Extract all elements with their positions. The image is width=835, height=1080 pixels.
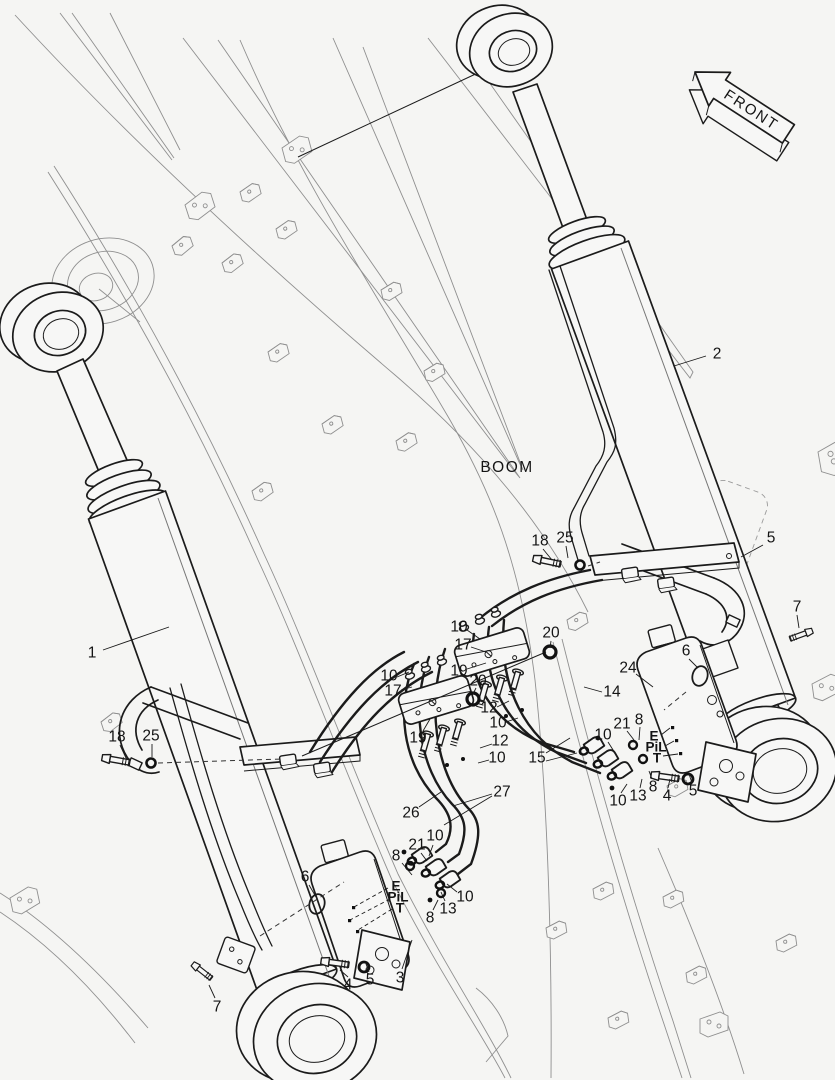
callout-4: 4 [344,977,353,994]
callout-6: 6 [682,643,691,660]
callout-5: 5 [689,783,698,800]
callout-8: 8 [649,779,658,796]
leader-line-7 [209,985,215,998]
callout-2: 2 [713,346,722,363]
front-direction-arrow: FRONT [674,56,804,168]
callout-T: T [396,901,405,916]
callout-27: 27 [493,784,510,801]
pipe-clamp-bolt-right [789,627,814,642]
leader-line-25 [566,546,568,558]
left-boom-cylinder [0,271,389,1080]
callout-21: 21 [408,837,425,854]
callout-4: 4 [663,788,672,805]
leader-line-8 [433,900,438,910]
callout-13: 13 [629,788,646,805]
callout-12: 12 [491,733,508,750]
callout-5: 5 [366,972,375,989]
eye-reference-line [298,64,497,157]
callout-3: 3 [396,970,405,987]
callout-20: 20 [542,625,560,642]
callout-10: 10 [450,619,468,636]
callout-8: 8 [392,848,401,865]
leader-line-10 [478,760,489,763]
callout-1: 1 [88,645,97,662]
callout-6: 6 [301,869,310,886]
parts-diagram-boom-cylinder-piping: FRONT BOOM 121825764538211010138EPiLT101… [0,0,835,1080]
callout-18: 18 [531,533,548,550]
callout-10: 10 [456,889,474,906]
callout-10: 10 [426,828,444,845]
leader-line-14 [584,687,602,692]
pipe-clamp-bolt-left [190,961,213,982]
callout-10: 10 [594,727,612,744]
callout-19: 19 [409,730,426,747]
callout-10: 10 [488,750,506,767]
leader-line-2 [674,356,706,366]
boom-label: BOOM [480,459,533,476]
leader-line-18 [120,745,126,758]
callout-10: 10 [489,715,507,732]
leader-line-8 [639,727,640,740]
callout-21: 21 [613,716,630,733]
callout-5: 5 [767,530,776,547]
callout-14: 14 [603,684,621,701]
callout-24: 24 [619,660,637,677]
callout-10: 10 [609,793,627,810]
callout-25: 25 [142,728,159,745]
callout-15: 15 [528,750,545,767]
callout-18: 18 [108,729,125,746]
callout-8: 8 [426,910,435,927]
callout-7: 7 [793,599,802,616]
diagram-canvas: FRONT BOOM 121825764538211010138EPiLT101… [0,0,835,1080]
callout-T: T [653,751,662,766]
leader-line-27 [444,796,492,825]
right-cylinder-rod [513,84,590,236]
left-cylinder-rod [57,359,130,479]
leader-line-7 [797,615,799,628]
leader-line-5 [741,545,763,557]
callout-7: 7 [213,999,222,1016]
callout-25: 25 [556,530,573,547]
leader-line-12 [480,744,492,748]
callout-8: 8 [635,712,644,729]
callout-26: 26 [402,805,419,822]
callout-17: 17 [454,637,471,654]
callout-13: 13 [439,901,456,918]
callout-19: 19 [450,663,467,680]
callout-17: 17 [384,683,401,700]
callout-20: 20 [469,673,487,690]
